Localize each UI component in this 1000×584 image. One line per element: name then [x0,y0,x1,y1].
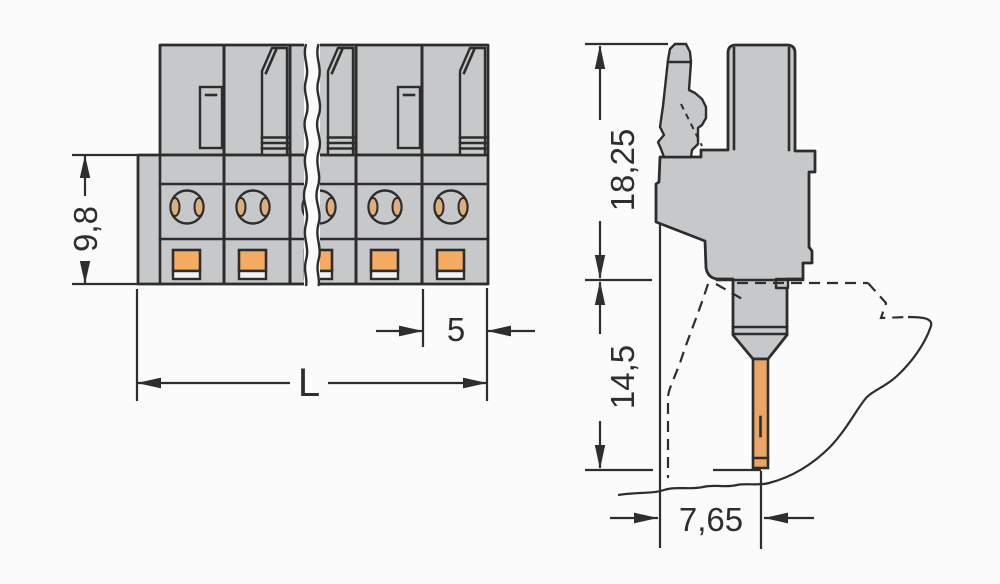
dim-label-height: 9,8 [67,206,104,252]
dimension-pitch: 5 [376,289,535,348]
dimension-pin-offset: 7,65 [610,471,814,549]
side-view: 18,25 14,5 7,65 [585,44,931,549]
dimension-side-height: 18,25 [585,44,668,279]
front-upper-housing [160,45,488,155]
front-view: 9,8 5 L [67,41,535,405]
dim-label-pin-depth: 14,5 [604,345,641,409]
connector-dimensional-drawing: 9,8 5 L [0,0,1000,584]
dimension-height: 9,8 [67,155,137,284]
dimension-length: L [137,288,487,405]
dim-label-pitch: 5 [447,311,465,348]
dim-label-side-height: 18,25 [604,129,641,212]
break-lines [304,41,320,289]
locking-latch [658,44,706,157]
dim-label-pin-offset: 7,65 [679,501,743,538]
technical-drawing-canvas: 9,8 5 L [0,0,1000,584]
dim-label-length: L [298,361,320,405]
solder-pin [753,359,768,468]
